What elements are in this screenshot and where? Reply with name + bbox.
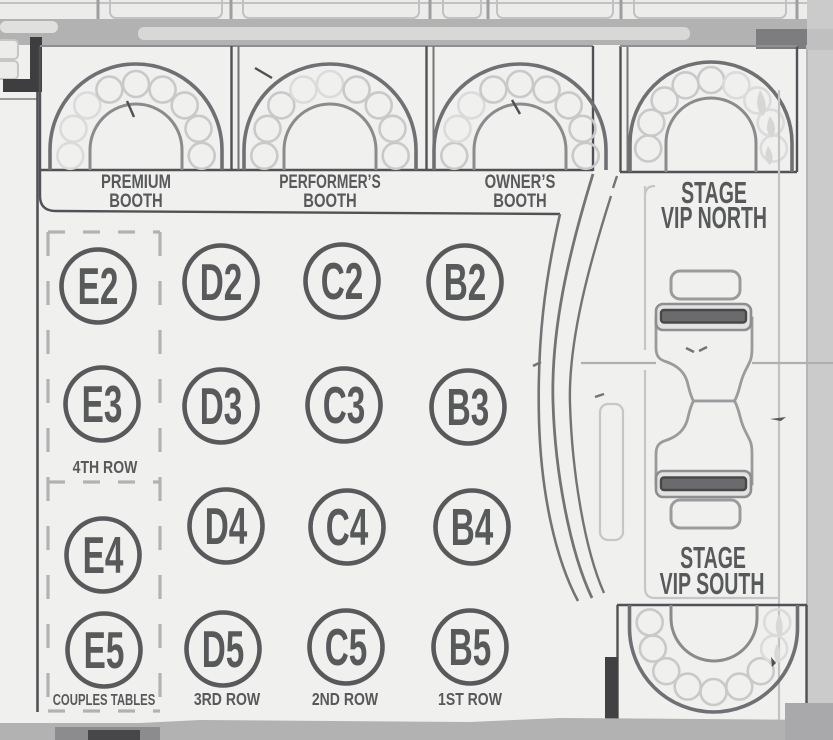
svg-text:C4: C4 xyxy=(326,499,369,557)
svg-text:D3: D3 xyxy=(200,378,243,436)
svg-text:4TH ROW: 4TH ROW xyxy=(73,457,138,477)
svg-text:D5: D5 xyxy=(202,621,245,679)
svg-text:COUPLES TABLES: COUPLES TABLES xyxy=(53,690,156,708)
svg-text:B2: B2 xyxy=(444,254,487,312)
svg-text:BOOTH: BOOTH xyxy=(303,189,356,212)
svg-text:E5: E5 xyxy=(84,622,125,680)
svg-text:E3: E3 xyxy=(82,376,123,434)
svg-text:BOOTH: BOOTH xyxy=(109,189,162,212)
svg-text:E2: E2 xyxy=(78,258,119,316)
svg-text:1ST ROW: 1ST ROW xyxy=(438,689,503,709)
svg-text:C5: C5 xyxy=(325,619,368,677)
svg-text:2ND ROW: 2ND ROW xyxy=(312,689,379,709)
svg-text:D2: D2 xyxy=(200,254,243,312)
svg-text:C3: C3 xyxy=(323,377,366,435)
svg-text:VIP NORTH: VIP NORTH xyxy=(661,202,767,236)
svg-text:B3: B3 xyxy=(447,379,490,437)
svg-text:C2: C2 xyxy=(321,253,364,311)
svg-text:3RD ROW: 3RD ROW xyxy=(194,689,261,709)
svg-text:VIP SOUTH: VIP SOUTH xyxy=(660,568,765,602)
svg-text:B5: B5 xyxy=(449,619,492,677)
svg-text:D4: D4 xyxy=(205,498,248,556)
svg-text:B4: B4 xyxy=(451,499,494,557)
svg-text:BOOTH: BOOTH xyxy=(493,189,546,212)
svg-text:E4: E4 xyxy=(83,527,124,585)
